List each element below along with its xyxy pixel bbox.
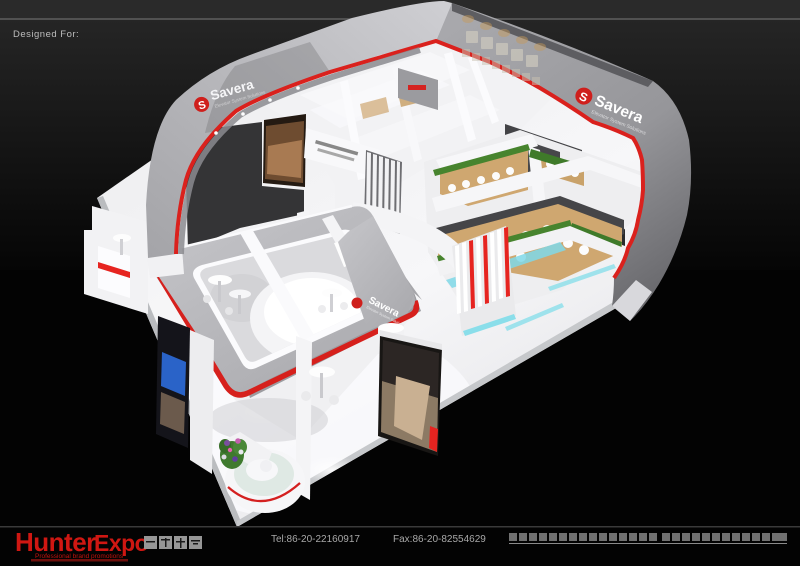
svg-text:Tel:86-20-22160917: Tel:86-20-22160917 (271, 534, 360, 545)
svg-text:Fax:86-20-82554629: Fax:86-20-82554629 (393, 534, 486, 545)
svg-text:Professional brand promotions: Professional brand promotions (35, 553, 124, 560)
svg-text:Designed For:: Designed For: (13, 29, 79, 40)
